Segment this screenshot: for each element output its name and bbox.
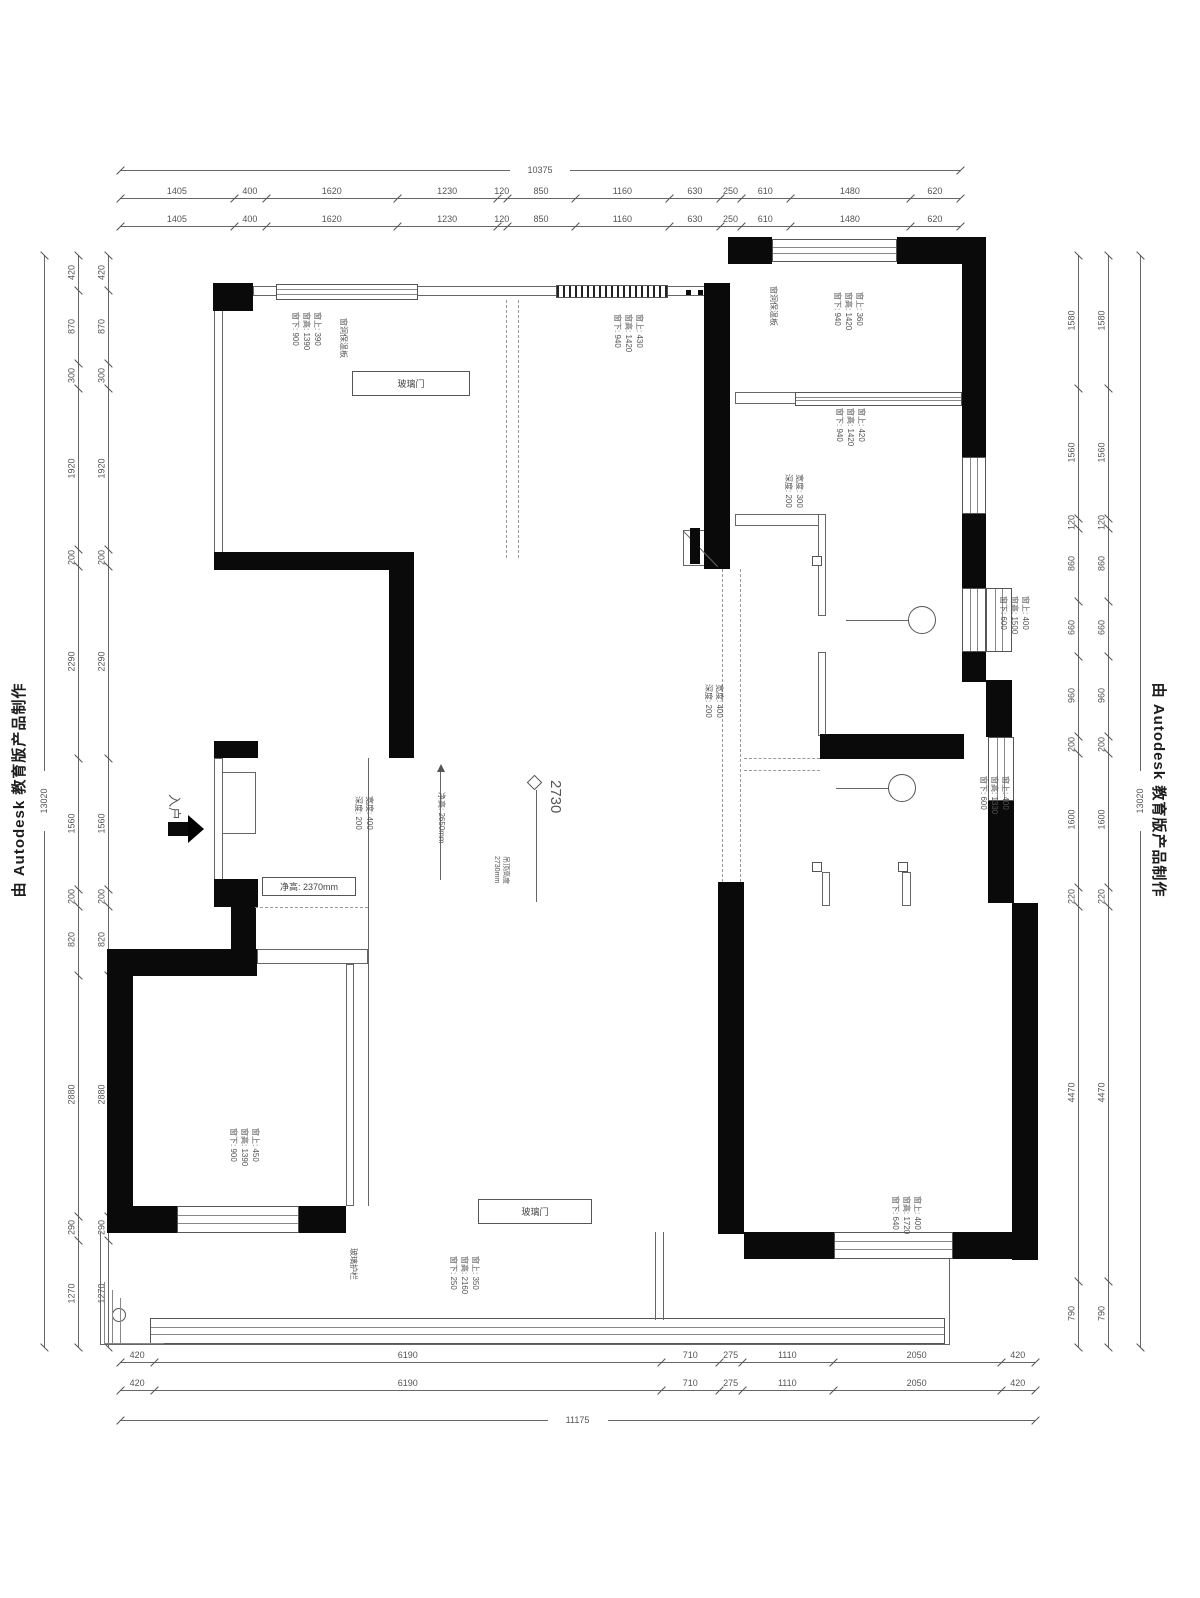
- dim-label: 860: [1097, 534, 1108, 594]
- entry-arrow-shaft: [168, 822, 188, 836]
- plan-line: [949, 1258, 950, 1345]
- dim-line: [120, 1390, 1035, 1391]
- dim-label: 300: [67, 345, 78, 405]
- dim-label: 13020: [38, 771, 50, 831]
- step-line: [120, 1298, 164, 1344]
- fixture-circle: [908, 606, 936, 634]
- dim-line: [120, 198, 960, 199]
- dim-line: [1078, 255, 1079, 1347]
- dim-label: 1230: [417, 186, 477, 197]
- door-label-box: 净高: 2370mm: [262, 877, 356, 896]
- thin-wall: [222, 772, 256, 834]
- annotation-text: 2730: [545, 780, 565, 813]
- dim-label: 1920: [97, 438, 108, 498]
- annotation-text: 窗洞保温板: [337, 318, 348, 358]
- column-marker: [812, 862, 822, 872]
- annotation-text: 窗洞保温板: [767, 286, 778, 326]
- annotation-text: 净高: 2650mm: [435, 792, 446, 844]
- plan-line: [100, 1344, 950, 1345]
- dashed-line: [722, 569, 723, 882]
- window-hatch: [276, 284, 418, 300]
- wall-segment: [214, 879, 258, 907]
- dim-line: [120, 1362, 1035, 1363]
- dim-label: 610: [735, 214, 795, 225]
- dim-label: 620: [905, 186, 965, 197]
- dim-line: [1108, 255, 1109, 1347]
- annotation-text: 窗上: 400窗高: 1720窗下: 640: [890, 1196, 922, 1234]
- dim-label: 610: [735, 186, 795, 197]
- wall-segment: [214, 552, 414, 570]
- dim-label: 400: [220, 214, 280, 225]
- thin-wall: [822, 872, 830, 906]
- floorplan-canvas: 由 Autodesk 教育版产品制作 由 Autodesk 教育版产品制作 10…: [0, 0, 1200, 1598]
- dim-label: 400: [220, 186, 280, 197]
- wall-segment: [728, 237, 772, 264]
- dim-line: [120, 226, 960, 227]
- door-leaf: [690, 528, 700, 564]
- wall-segment: [820, 734, 964, 759]
- dim-label: 1620: [302, 186, 362, 197]
- dim-label: 790: [1097, 1283, 1108, 1343]
- window-hatch: [150, 1318, 945, 1344]
- hinge-dot: [698, 290, 703, 295]
- dim-label: 850: [511, 214, 571, 225]
- dim-label: 1270: [67, 1263, 78, 1323]
- column-marker: [898, 862, 908, 872]
- dim-label: 1160: [592, 214, 652, 225]
- dim-label: 2880: [67, 1065, 78, 1125]
- dim-label: 1580: [1097, 291, 1108, 351]
- entry-arrow-head: [188, 815, 204, 843]
- dim-label: 2290: [67, 632, 78, 692]
- wall-segment: [988, 801, 1014, 903]
- wall-segment: [962, 652, 986, 682]
- dim-label: 300: [97, 345, 108, 405]
- annotation-text: 吊顶高度2730mm: [491, 856, 510, 884]
- dim-label: 6190: [378, 1350, 438, 1361]
- dim-label: 1480: [820, 186, 880, 197]
- dashed-line: [740, 569, 741, 882]
- wall-segment: [213, 283, 253, 311]
- dim-label: 1160: [592, 186, 652, 197]
- dim-label: 13020: [1134, 771, 1146, 831]
- dim-label: 275: [701, 1378, 761, 1389]
- dim-label: 4470: [1097, 1063, 1108, 1123]
- plan-line: [100, 1232, 101, 1345]
- plan-line: [846, 620, 916, 621]
- dim-label: 2290: [97, 632, 108, 692]
- dim-label: 820: [97, 910, 108, 970]
- annotation-text: 窗上: 350窗高: 2160窗下: 250: [448, 1256, 480, 1294]
- window-hatch: [962, 457, 986, 514]
- dim-label: 1480: [820, 214, 880, 225]
- dim-label: 275: [701, 1350, 761, 1361]
- annotation-text: 玻璃护栏: [347, 1248, 358, 1280]
- door-label-box: 玻璃门: [352, 371, 470, 396]
- fixture-circle: [888, 774, 916, 802]
- annotation-text: 宽度: 300深度: 200: [782, 474, 804, 508]
- dim-label: 1405: [147, 186, 207, 197]
- dim-label: 200: [97, 527, 108, 587]
- thin-wall: [214, 310, 223, 553]
- thin-wall: [346, 964, 354, 1206]
- annotation-text: 窗上: 360窗高: 1420窗下: 940: [832, 292, 864, 330]
- window-hatch: [795, 392, 962, 406]
- annotation-text: 窗上: 400窗高: 1500窗下: 600: [998, 596, 1030, 634]
- dim-label: 660: [1097, 598, 1108, 658]
- dim-label: 1110: [757, 1350, 817, 1361]
- wall-segment: [389, 552, 414, 758]
- door-label-box: 玻璃门: [478, 1199, 592, 1224]
- wall-segment: [897, 237, 986, 264]
- dim-label: 200: [1067, 714, 1078, 774]
- plan-line: [663, 1232, 664, 1320]
- dashed-line: [255, 907, 368, 908]
- dim-label: 1230: [417, 214, 477, 225]
- dim-label: 1620: [302, 214, 362, 225]
- dim-label: 10375: [510, 164, 570, 176]
- dim-label: 220: [1067, 866, 1078, 926]
- window-hatch: [962, 588, 986, 652]
- dim-label: 11175: [548, 1414, 608, 1426]
- dim-line: [78, 255, 79, 1347]
- dim-label: 1110: [757, 1378, 817, 1389]
- dim-label: 2880: [97, 1065, 108, 1125]
- watermark-right: 由 Autodesk 教育版产品制作: [1150, 630, 1170, 950]
- annotation-text: 窗上: 400窗高: 1330窗下: 600: [978, 776, 1010, 814]
- annotation-text: 宽度: 400深度: 200: [352, 796, 374, 830]
- dashed-line: [744, 758, 820, 759]
- dim-label: 290: [67, 1198, 78, 1258]
- dim-label: 1920: [67, 438, 78, 498]
- thin-wall: [902, 872, 911, 906]
- window-hatch: [556, 285, 668, 298]
- dim-label: 660: [1067, 598, 1078, 658]
- dim-label: 790: [1067, 1283, 1078, 1343]
- column-marker: [812, 556, 822, 566]
- plan-line: [655, 1232, 656, 1320]
- wall-segment: [299, 1206, 346, 1233]
- dim-label: 1560: [97, 793, 108, 853]
- plan-line: [536, 790, 537, 902]
- dim-label: 6190: [378, 1378, 438, 1389]
- wall-segment: [704, 283, 730, 569]
- wall-segment: [1012, 903, 1038, 1260]
- dim-label: 850: [511, 186, 571, 197]
- dashed-line: [518, 300, 519, 558]
- dashed-line: [744, 770, 820, 771]
- annotation-text: 窗上: 430窗高: 1420窗下: 940: [612, 314, 644, 352]
- dim-label: 1600: [1067, 790, 1078, 850]
- hinge-dot: [686, 290, 691, 295]
- annotation-text: 窗上: 390窗高: 1390窗下: 900: [290, 312, 322, 350]
- annotation-text: 窗上: 450窗高: 1390窗下: 900: [228, 1128, 260, 1166]
- wall-segment: [744, 1232, 834, 1259]
- dim-label: 1560: [67, 793, 78, 853]
- wall-segment: [107, 949, 133, 1233]
- window-hatch: [772, 239, 897, 262]
- dim-label: 820: [67, 910, 78, 970]
- height-arrow-head: [437, 764, 445, 772]
- wall-segment: [718, 882, 744, 1234]
- annotation-text: 窗上: 420窗高: 1420窗下: 940: [834, 408, 866, 446]
- plan-line: [836, 788, 896, 789]
- wall-segment: [214, 741, 258, 758]
- annotation-text: 入户: [165, 794, 183, 820]
- dim-label: 4470: [1067, 1063, 1078, 1123]
- dim-label: 1560: [1067, 422, 1078, 482]
- dim-label: 200: [1097, 714, 1108, 774]
- watermark-left: 由 Autodesk 教育版产品制作: [8, 630, 28, 950]
- dim-label: 620: [905, 214, 965, 225]
- window-hatch: [177, 1206, 299, 1233]
- wall-segment: [986, 680, 1012, 737]
- dim-label: 420: [97, 242, 108, 302]
- dim-label: 1600: [1097, 790, 1108, 850]
- dim-label: 1405: [147, 214, 207, 225]
- wall-segment: [953, 1232, 1038, 1259]
- dim-label: 2050: [887, 1350, 947, 1361]
- dim-label: 220: [1097, 866, 1108, 926]
- dim-label: 420: [67, 242, 78, 302]
- wall-segment: [962, 514, 986, 588]
- dim-label: 200: [67, 527, 78, 587]
- wall-segment: [231, 907, 256, 953]
- window-hatch: [834, 1232, 953, 1259]
- annotation-text: 宽度: 400深度: 200: [702, 684, 724, 718]
- wall-segment: [962, 264, 986, 457]
- dim-label: 1560: [1097, 422, 1108, 482]
- ceiling-height-marker: [527, 775, 543, 791]
- wall-segment: [107, 1206, 177, 1233]
- thin-wall: [257, 949, 368, 964]
- dim-label: 2050: [887, 1378, 947, 1389]
- dim-label: 1580: [1067, 291, 1078, 351]
- dashed-line: [506, 300, 507, 558]
- thin-wall: [735, 514, 820, 526]
- dim-label: 860: [1067, 534, 1078, 594]
- thin-wall: [818, 652, 826, 736]
- dim-label: 290: [97, 1198, 108, 1258]
